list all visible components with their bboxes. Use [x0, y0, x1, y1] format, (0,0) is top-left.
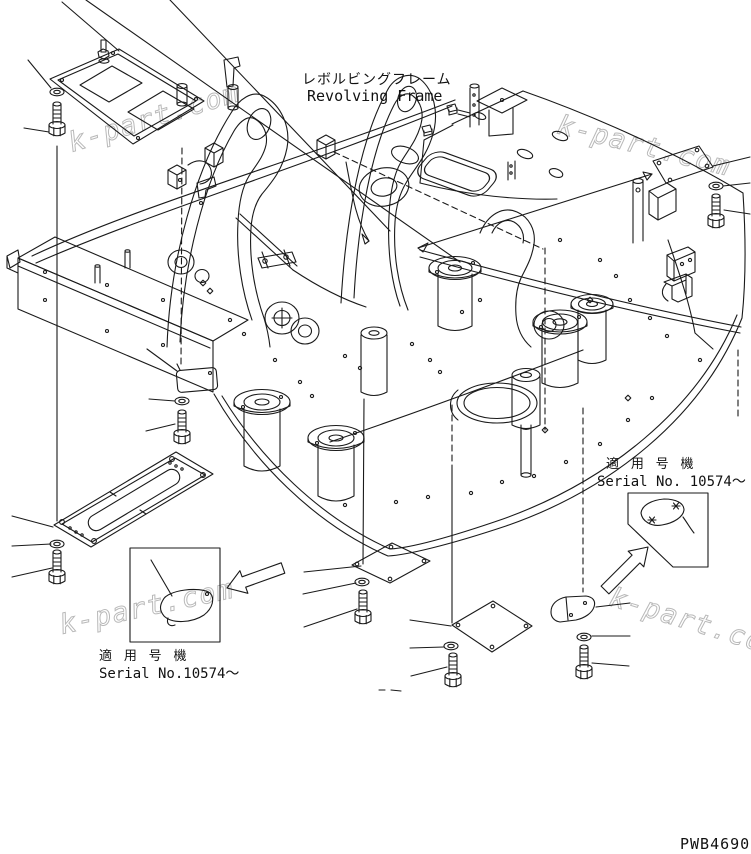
bolt: [708, 194, 724, 228]
revolving-frame-diagram: k-part.com k-part.com k-part.com k-part.…: [0, 0, 751, 854]
bolt: [49, 550, 65, 584]
washer: [50, 540, 64, 548]
cylinders: [234, 257, 613, 502]
title-japanese: レボルビングフレーム: [302, 72, 452, 88]
serial-note-left-en: Serial No.10574～: [99, 666, 239, 682]
watermark-text: k-part.com: [65, 77, 244, 159]
serial-note-left-jp: 適 用 号 機: [99, 648, 188, 664]
title-english: Revolving Frame: [307, 87, 442, 105]
right-rear-brackets: [633, 179, 695, 302]
washer: [175, 397, 189, 405]
detail-box-right: [628, 493, 708, 567]
washer: [709, 182, 723, 190]
washer: [50, 88, 64, 96]
watermark-text: k-part.com: [606, 582, 751, 664]
drawing-number: PWB4690: [680, 835, 750, 853]
washer: [355, 578, 369, 586]
bolt: [174, 410, 190, 444]
bolt: [576, 645, 592, 679]
bolt: [355, 590, 371, 624]
serial-note-right-jp: 適 用 号 機: [606, 456, 695, 472]
washer: [577, 633, 591, 641]
boom-brackets: [167, 75, 564, 347]
small-cover-plate: [176, 364, 218, 393]
rear-platform: [458, 84, 527, 180]
bolt: [49, 102, 65, 136]
bottom-cover-plates: [352, 543, 595, 652]
parts-diagram-page: k-part.com k-part.com k-part.com k-part.…: [0, 0, 751, 854]
bolt: [445, 653, 461, 687]
serial-note-right-en: Serial No. 10574～: [597, 474, 746, 490]
detail-arrow-left-icon: [227, 563, 285, 594]
center-blocks: [168, 135, 335, 205]
gasket-plate: [54, 452, 213, 547]
washer: [444, 642, 458, 650]
